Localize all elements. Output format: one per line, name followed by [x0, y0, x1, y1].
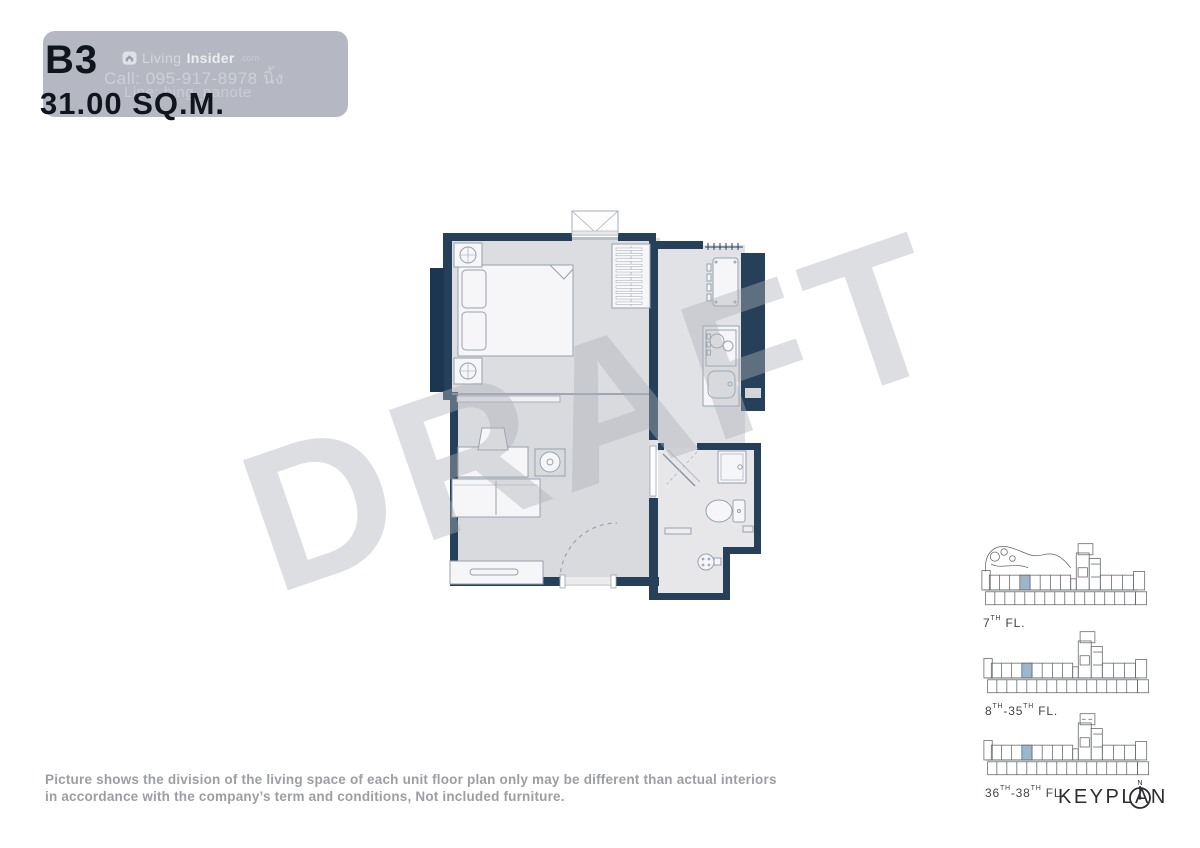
hall-door-leaf [650, 446, 656, 496]
entry-door-post-left [560, 575, 565, 588]
exterior-cutout [730, 554, 761, 600]
keyplan-7th-floor: 7TH FL. [975, 540, 1159, 630]
sliding-door-panel [457, 396, 560, 402]
desk [458, 447, 528, 477]
desk-stool [478, 428, 508, 450]
shaft-slot [745, 388, 761, 398]
service-shaft [741, 253, 765, 411]
fan-hub [547, 459, 553, 465]
wall-bedroom-top-left [443, 233, 572, 241]
unit-floor-plan [425, 198, 765, 618]
wall-line-under-ac [572, 237, 618, 240]
vanity-sink [718, 451, 746, 483]
disclaimer-line-1: Picture shows the division of the living… [45, 772, 777, 789]
pillow-top [462, 270, 486, 308]
floorplan-sheet: B3 LivingInsider.com Call: 095-917-8978 … [0, 0, 1200, 848]
logo-brand-suffix: .com [240, 53, 260, 63]
tv [470, 569, 518, 575]
living-insider-house-icon [122, 51, 137, 66]
sofa [452, 479, 540, 517]
logo-brand-bold: Insider [187, 50, 235, 66]
wardrobe [612, 244, 650, 308]
wall-bath-bottom [653, 593, 730, 600]
entry-threshold [565, 577, 611, 584]
toilet [706, 500, 745, 522]
keyplan-diagram-8th-35th [977, 628, 1161, 702]
disclaimer: Picture shows the division of the living… [45, 772, 777, 806]
unit-code: B3 [45, 40, 98, 80]
ac-unit [572, 211, 618, 235]
wall-bedroom-left [443, 233, 452, 400]
disclaimer-line-2: in accordance with the company’s term an… [45, 789, 777, 806]
entry-door-post-right [611, 575, 616, 588]
keyplan-8th-35th-floor: 8TH-35TH FL. [977, 628, 1161, 718]
logo-brand-light: Living [142, 50, 182, 66]
wall-bath-top [697, 443, 761, 450]
wall-bath-stub [658, 443, 664, 450]
svg-text:N: N [1137, 780, 1142, 787]
living-insider-logo: LivingInsider.com [122, 50, 259, 66]
keyplan-diagram-36th-38th [977, 710, 1161, 784]
wall-hall-upper [649, 394, 658, 440]
north-compass-icon: N [1124, 778, 1156, 812]
kitchen-sink [708, 371, 735, 398]
wall-kitchen-top [655, 241, 703, 249]
wall-bath-step-v [723, 547, 730, 600]
stove [706, 330, 736, 366]
wall-bath-right [754, 443, 761, 553]
bedroom-window-block [430, 268, 444, 392]
wall-hall-lower [649, 498, 658, 600]
keyplan-diagram-7th [975, 540, 1159, 614]
unit-area: 31.00 SQ.M. [40, 88, 225, 119]
pillow-bottom [462, 312, 486, 350]
wall-bedroom-top-right [618, 233, 656, 241]
